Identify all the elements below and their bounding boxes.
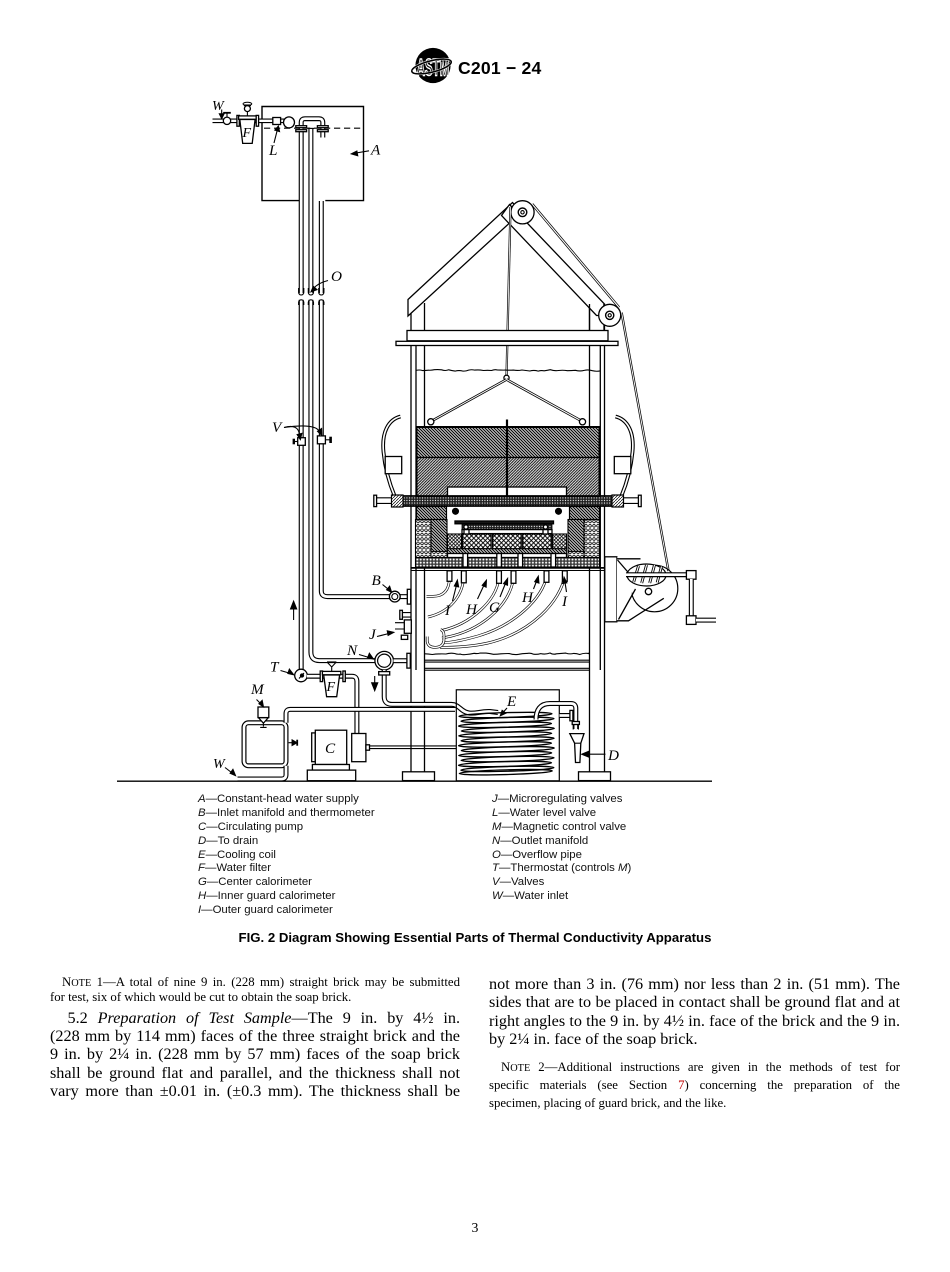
svg-text:I: I xyxy=(561,593,568,610)
svg-text:G: G xyxy=(489,599,500,616)
svg-text:C: C xyxy=(325,740,336,757)
svg-text:I: I xyxy=(444,602,451,619)
svg-text:B: B xyxy=(372,572,381,589)
svg-text:D: D xyxy=(607,747,619,764)
svg-text:N: N xyxy=(346,642,358,659)
svg-text:L: L xyxy=(268,142,277,159)
svg-text:H: H xyxy=(521,589,534,606)
svg-text:M: M xyxy=(250,681,265,698)
svg-text:T: T xyxy=(270,659,280,676)
svg-text:J: J xyxy=(369,626,377,643)
svg-text:A: A xyxy=(370,142,381,159)
svg-text:E: E xyxy=(506,693,517,710)
svg-text:F: F xyxy=(326,680,336,695)
svg-text:W: W xyxy=(213,757,226,772)
svg-text:O: O xyxy=(331,268,342,285)
svg-text:W: W xyxy=(212,99,225,114)
svg-text:F: F xyxy=(242,126,252,141)
svg-text:H: H xyxy=(465,601,478,618)
svg-text:V: V xyxy=(272,419,283,436)
